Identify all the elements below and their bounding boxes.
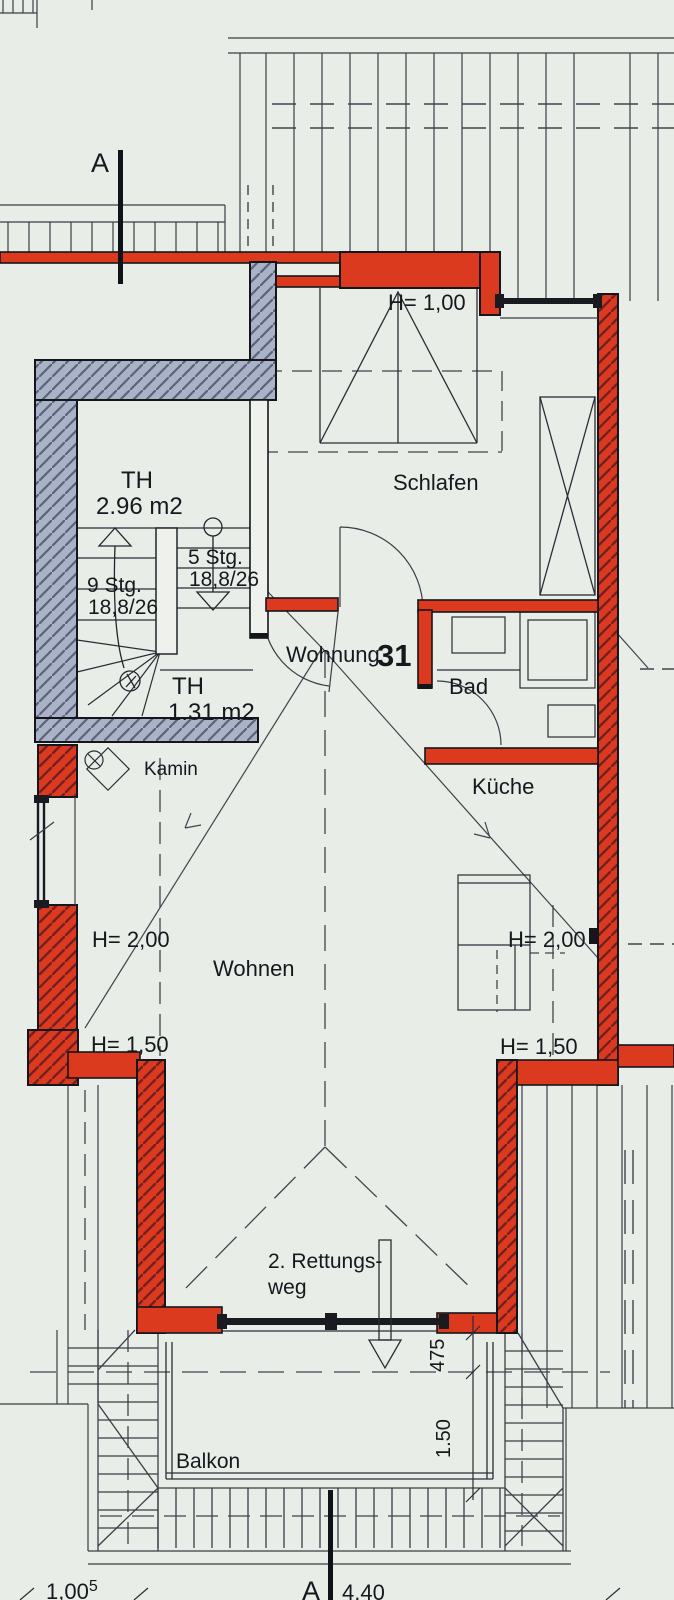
stairs-up-steps: 9 Stg. xyxy=(87,574,142,597)
room-label-balkon: Balkon xyxy=(176,1450,240,1473)
stairs-down-steps: 5 Stg. xyxy=(188,546,243,569)
escape-label-line1: 2. Rettungs- xyxy=(268,1250,382,1273)
section-label-top: A xyxy=(91,148,109,178)
height-label-200-right: H= 2,00 xyxy=(508,927,586,952)
th-upper-name: TH xyxy=(121,467,153,494)
dim-label-475: 475 xyxy=(427,1339,449,1372)
label-kamin: Kamin xyxy=(144,759,198,780)
floor-plan-drawing: A H= 1,00 TH 2.96 m2 Schlafen 5 Stg. 18,… xyxy=(0,0,674,1600)
room-label-kueche: Küche xyxy=(472,774,534,799)
floor-plan-svg: A H= 1,00 TH 2.96 m2 Schlafen 5 Stg. 18,… xyxy=(0,0,674,1600)
dim-label-440: 4,40 xyxy=(342,1580,385,1600)
stairs-down-ratio: 18,8/26 xyxy=(189,568,259,591)
stair-spine-wall xyxy=(156,528,177,654)
stairs-up-ratio: 18,8/26 xyxy=(88,596,158,619)
dim-label-150: 1.50 xyxy=(433,1419,455,1458)
height-label-150-right: H= 1,50 xyxy=(500,1034,578,1059)
height-label-150-left: H= 1,50 xyxy=(91,1032,169,1057)
paper-background xyxy=(0,0,674,1600)
th-lower-name: TH xyxy=(172,673,204,700)
room-label-wohnen: Wohnen xyxy=(213,956,295,981)
apartment-number: 31 xyxy=(377,638,411,673)
th-lower-area: 1.31 m2 xyxy=(168,699,255,726)
room-label-bad: Bad xyxy=(449,674,488,699)
section-label-bottom: A xyxy=(302,1576,320,1600)
dim-label-100-sup: 5 xyxy=(89,1578,98,1595)
height-label-100: H= 1,00 xyxy=(388,290,466,315)
escape-label-line2: weg xyxy=(267,1276,307,1299)
height-label-200-left: H= 2,00 xyxy=(92,927,170,952)
room-label-schlafen: Schlafen xyxy=(393,470,479,495)
th-upper-area: 2.96 m2 xyxy=(96,493,183,520)
apartment-label: Wohnung xyxy=(286,642,380,667)
